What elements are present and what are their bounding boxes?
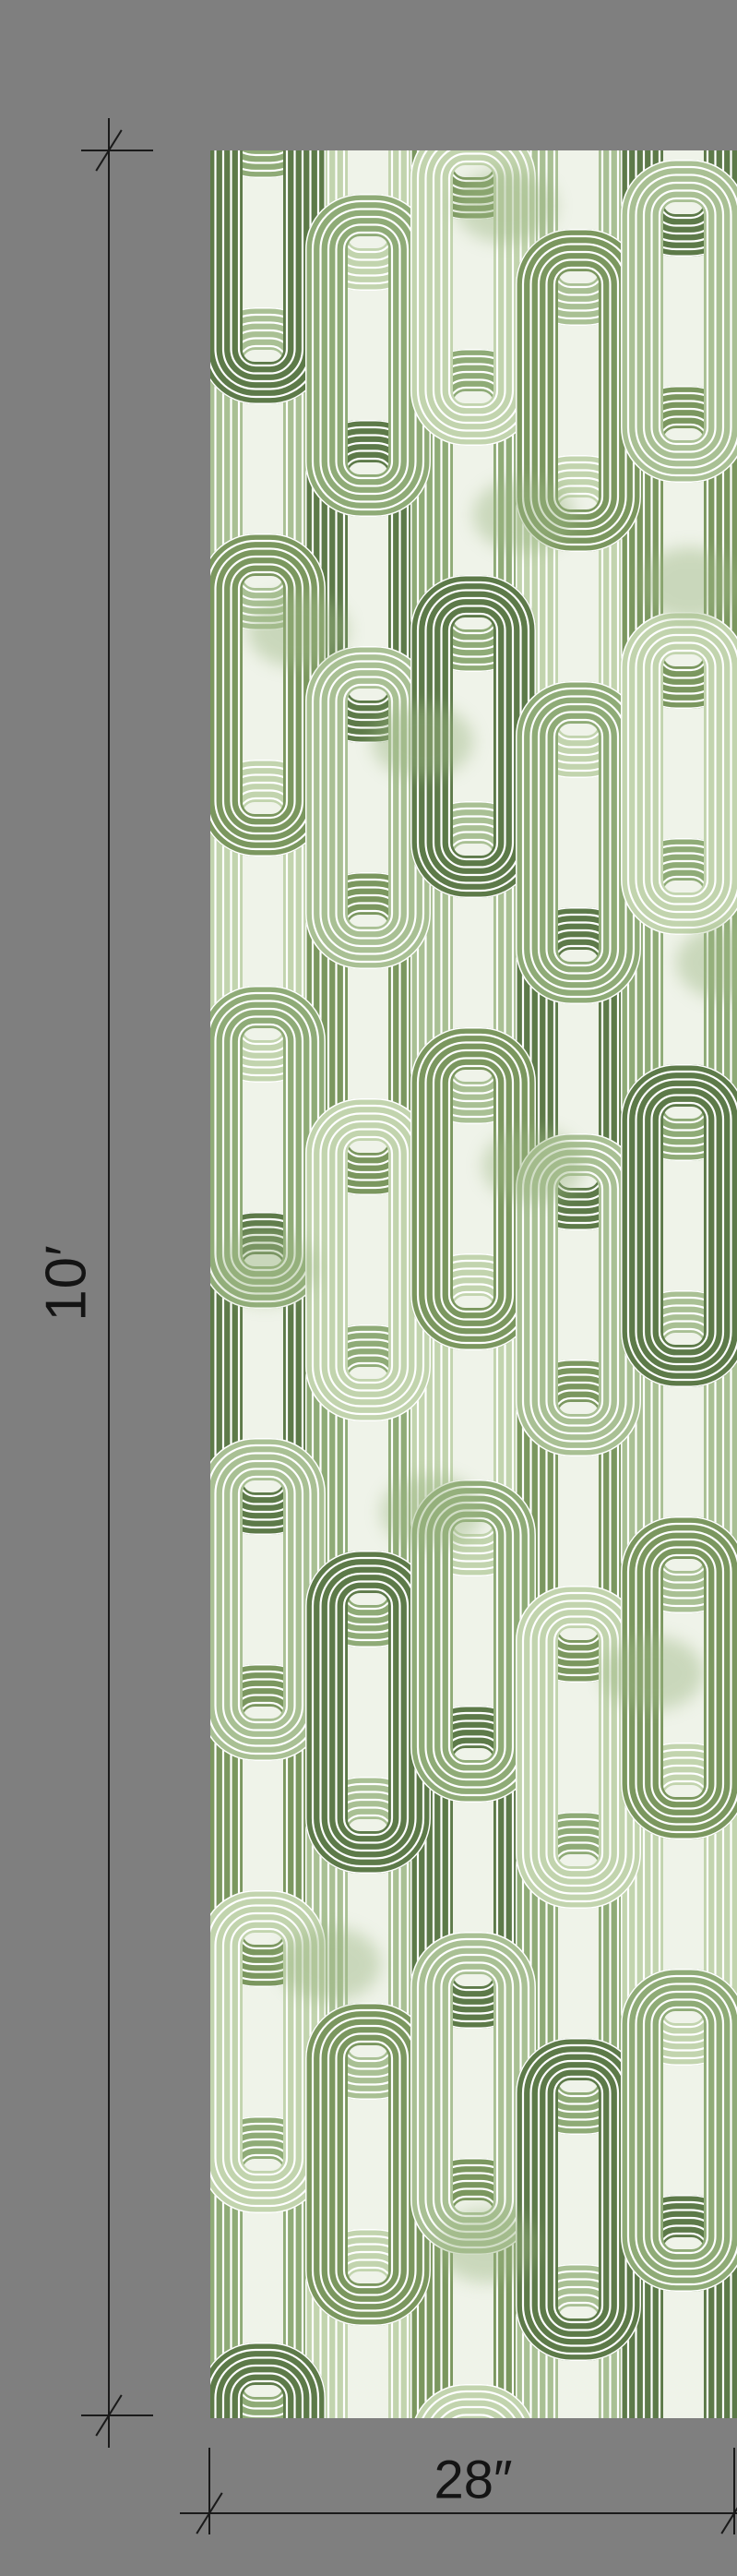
height-dimension-label: 10′ [34, 1244, 100, 1322]
mockup-canvas: 10′ 28″ [0, 0, 737, 2576]
width-dimension-extension-left [208, 2448, 210, 2534]
width-dimension-label: 28″ [434, 2450, 512, 2511]
width-dimension-extension-right [733, 2448, 735, 2534]
wallpaper-pattern [210, 150, 737, 2418]
width-dimension-line [180, 2512, 737, 2514]
height-dimension-line [108, 118, 110, 2448]
wallpaper-panel [210, 150, 737, 2418]
height-dimension-crossbar-top [81, 150, 153, 151]
height-dimension-crossbar-bottom [81, 2414, 153, 2416]
